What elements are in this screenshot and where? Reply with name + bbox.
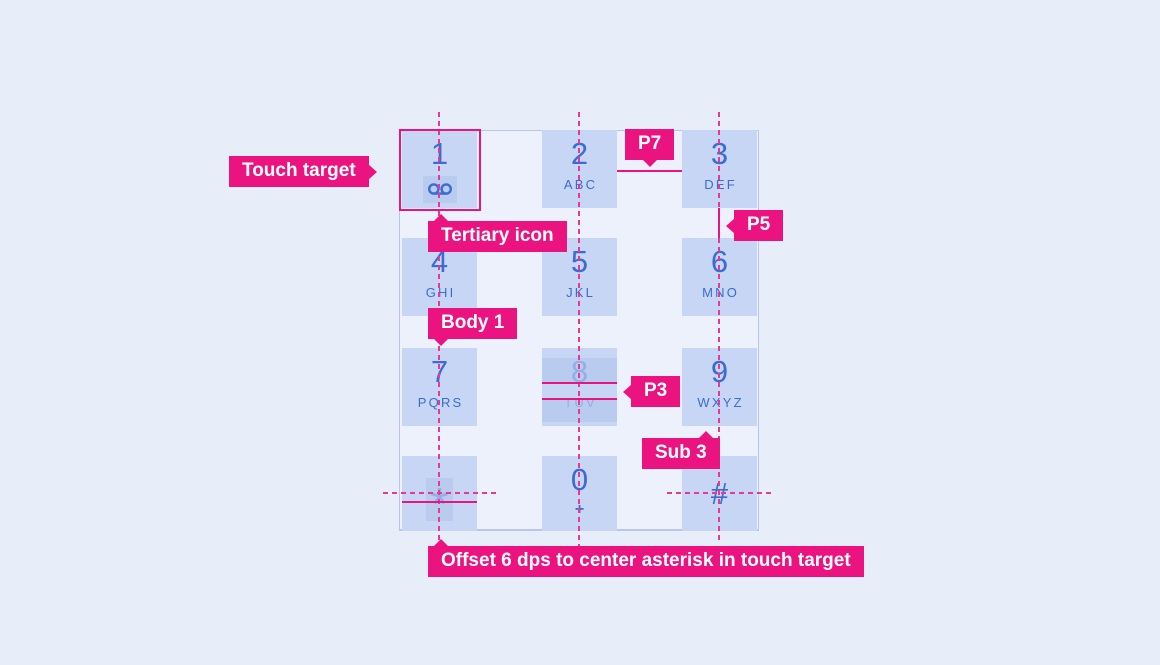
touch-target-outline: [399, 129, 481, 211]
dialpad-spec-figure: 12ABC3DEF4GHI5JKL6MNO7PQRS8TUV9WXYZ*0+# …: [0, 0, 1160, 665]
pointer-down-icon: [433, 338, 449, 346]
annotation-text: Touch target: [242, 160, 356, 181]
annotation-text: Offset 6 dps to center asterisk in touch…: [441, 550, 851, 571]
p3-measure-line-bottom: [542, 398, 617, 400]
p3-measure-line-top: [542, 382, 617, 384]
column-centerline-3: [718, 112, 720, 541]
annotation-touch-target: Touch target: [229, 156, 369, 187]
annotation-text: P5: [747, 214, 770, 235]
star-centerline: [383, 492, 497, 494]
p5-measure-line: [718, 208, 720, 238]
annotation-text: Sub 3: [655, 442, 707, 463]
annotation-p3: P3: [631, 376, 680, 407]
pointer-left-icon: [726, 218, 735, 234]
annotation-offset: Offset 6 dps to center asterisk in touch…: [428, 546, 864, 577]
annotation-tertiary-icon: Tertiary icon: [428, 221, 567, 252]
hash-centerline: [667, 492, 774, 494]
column-centerline-2: [578, 112, 580, 549]
annotation-p5: P5: [734, 210, 783, 241]
pointer-up-icon: [433, 539, 449, 547]
annotation-text: Tertiary icon: [441, 225, 554, 246]
annotation-text: P3: [644, 380, 667, 401]
offset-measure-line: [402, 501, 477, 503]
pointer-left-icon: [623, 384, 632, 400]
pointer-right-icon: [368, 164, 377, 180]
annotation-text: P7: [638, 133, 661, 154]
pointer-down-icon: [642, 159, 658, 167]
annotation-sub-3: Sub 3: [642, 438, 720, 469]
pointer-up-icon: [433, 214, 449, 222]
p7-measure-line: [617, 170, 682, 172]
annotation-text: Body 1: [441, 312, 504, 333]
annotation-body-1: Body 1: [428, 308, 517, 339]
annotation-p7: P7: [625, 129, 674, 160]
pointer-up-icon: [698, 431, 714, 439]
